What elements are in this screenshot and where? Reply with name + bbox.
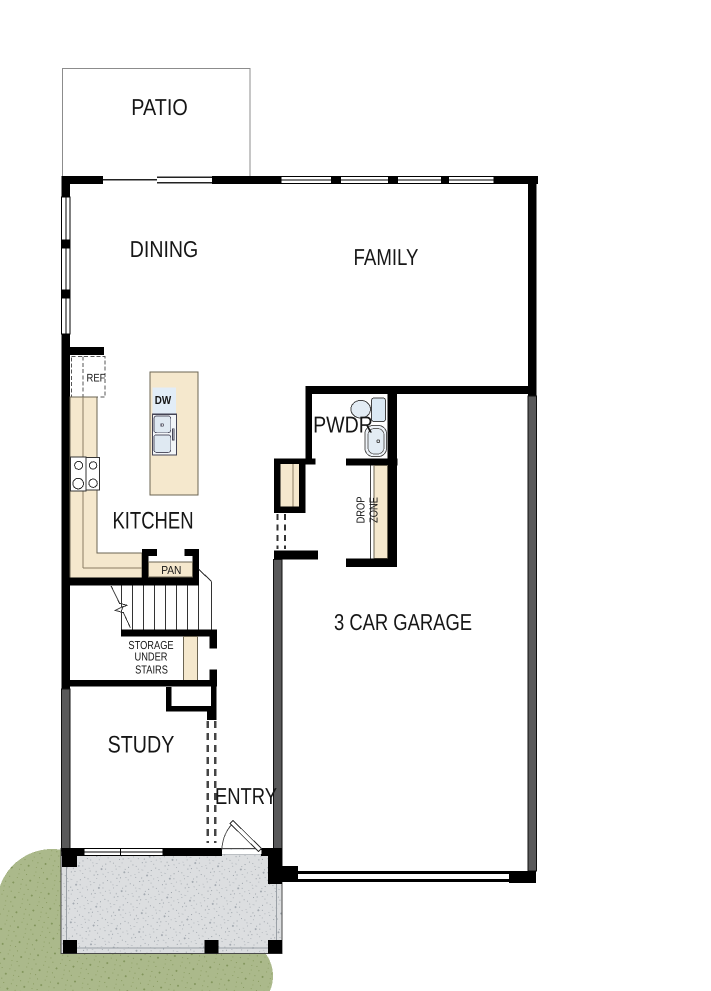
svg-text:PATIO: PATIO — [131, 94, 187, 120]
svg-text:DINING: DINING — [130, 236, 198, 262]
svg-text:ZONE: ZONE — [368, 497, 381, 523]
svg-text:KITCHEN: KITCHEN — [112, 507, 193, 534]
svg-text:STAIRS: STAIRS — [135, 664, 168, 677]
svg-text:PAN: PAN — [161, 564, 181, 577]
svg-text:STUDY: STUDY — [108, 731, 175, 758]
svg-text:PWDR: PWDR — [313, 412, 373, 438]
svg-text:UNDER: UNDER — [135, 651, 168, 664]
svg-text:DROP: DROP — [354, 496, 367, 523]
svg-text:FAMILY: FAMILY — [354, 244, 419, 270]
svg-text:3 CAR GARAGE: 3 CAR GARAGE — [334, 609, 472, 635]
svg-text:REF: REF — [87, 372, 106, 384]
svg-text:ENTRY: ENTRY — [215, 783, 277, 809]
svg-text:DW: DW — [155, 394, 171, 407]
